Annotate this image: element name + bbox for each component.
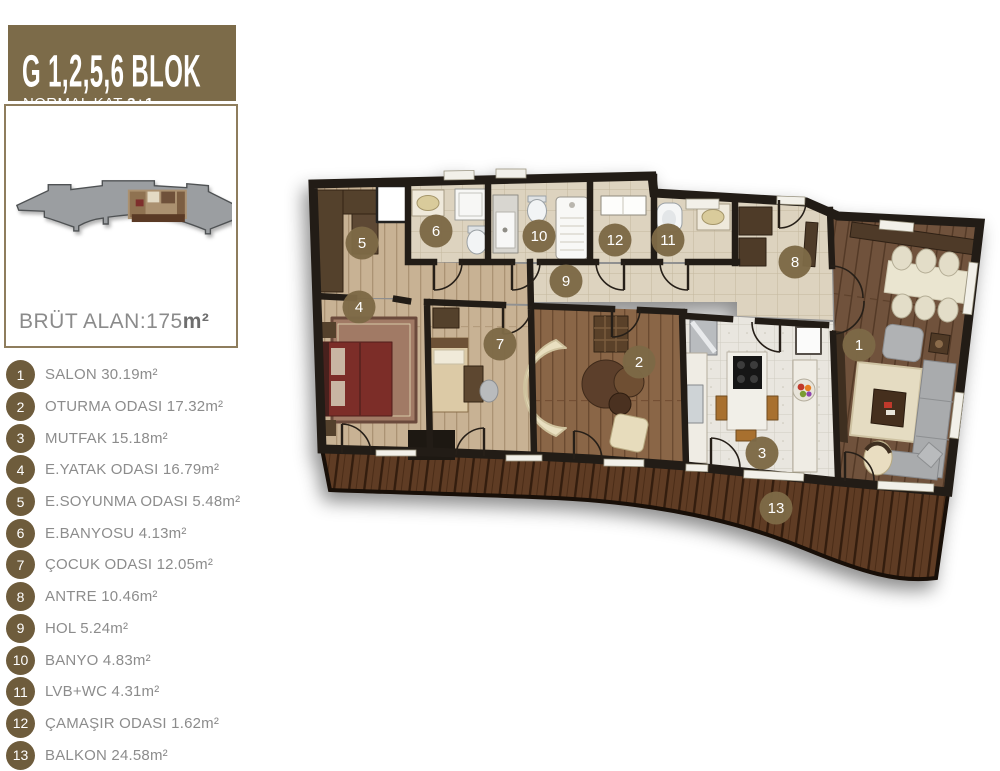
room-marker-number: 10 — [531, 228, 548, 245]
legend-item: 5E.SOYUNMA ODASI 5.48m² — [6, 486, 240, 518]
legend-label: BALKON 24.58m² — [45, 747, 168, 764]
legend-item: 12ÇAMAŞIR ODASI 1.62m² — [6, 708, 240, 740]
room-marker-number: 4 — [355, 299, 363, 316]
legend-label: SALON 30.19m² — [45, 366, 158, 383]
legend-number-badge: 7 — [6, 550, 35, 579]
room-marker-number: 9 — [562, 273, 570, 290]
site-overview-panel: BRÜT ALAN:175m² — [4, 104, 238, 348]
legend-item: 2OTURMA ODASI 17.32m² — [6, 391, 240, 423]
room-legend: 1SALON 30.19m² 2OTURMA ODASI 17.32m² 3MU… — [6, 359, 240, 771]
room-marker-number: 2 — [635, 354, 643, 371]
double-bed — [320, 342, 392, 416]
single-bed — [431, 338, 468, 412]
room-marker-number: 5 — [358, 235, 366, 252]
room-marker-number: 7 — [496, 336, 504, 353]
legend-label: ÇAMAŞIR ODASI 1.62m² — [45, 715, 219, 732]
room-marker-number: 13 — [768, 500, 785, 517]
legend-number-badge: 5 — [6, 487, 35, 516]
room-marker-number: 3 — [758, 445, 766, 462]
fruit-bowl — [793, 379, 815, 401]
legend-number-badge: 4 — [6, 455, 35, 484]
legend-number-badge: 12 — [6, 709, 35, 738]
legend-item: 11LVB+WC 4.31m² — [6, 676, 240, 708]
sink — [687, 385, 703, 423]
building-footprint — [17, 181, 232, 234]
legend-label: OTURMA ODASI 17.32m² — [45, 398, 223, 415]
legend-number-badge: 11 — [6, 677, 35, 706]
legend-number-badge: 13 — [6, 741, 35, 770]
site-overview-map — [6, 106, 232, 342]
legend-number-badge: 9 — [6, 614, 35, 643]
legend-label: ÇOCUK ODASI 12.05m² — [45, 556, 213, 573]
legend-item: 6E.BANYOSU 4.13m² — [6, 517, 240, 549]
room-marker-number: 8 — [791, 254, 799, 271]
legend-label: MUTFAK 15.18m² — [45, 430, 168, 447]
legend-label: LVB+WC 4.31m² — [45, 683, 159, 700]
legend-item: 3MUTFAK 15.18m² — [6, 422, 240, 454]
gross-area-label: BRÜT ALAN:175m² — [19, 310, 209, 334]
room-marker-number: 12 — [607, 232, 624, 249]
highlighted-unit — [128, 190, 187, 222]
room-marker-number: 1 — [855, 337, 863, 354]
floor-plan: 12345678910111213 — [300, 155, 1000, 615]
legend-number-badge: 1 — [6, 360, 35, 389]
legend-number-badge: 3 — [6, 424, 35, 453]
legend-label: HOL 5.24m² — [45, 620, 128, 637]
legend-label: E.SOYUNMA ODASI 5.48m² — [45, 493, 240, 510]
legend-item: 10BANYO 4.83m² — [6, 644, 240, 676]
legend-item: 9HOL 5.24m² — [6, 613, 240, 645]
legend-number-badge: 2 — [6, 392, 35, 421]
desk — [464, 366, 483, 402]
legend-item: 8ANTRE 10.46m² — [6, 581, 240, 613]
legend-label: BANYO 4.83m² — [45, 652, 151, 669]
shaft — [377, 186, 408, 222]
armchair — [882, 324, 924, 363]
legend-label: E.BANYOSU 4.13m² — [45, 525, 187, 542]
room-marker-number: 6 — [432, 223, 440, 240]
legend-number-badge: 6 — [6, 519, 35, 548]
block-title: G 1,2,5,6 BLOK — [22, 51, 201, 96]
legend-item: 4E.YATAK ODASI 16.79m² — [6, 454, 240, 486]
legend-item: 13BALKON 24.58m² — [6, 739, 240, 771]
cooktop — [733, 356, 762, 389]
legend-label: E.YATAK ODASI 16.79m² — [45, 461, 219, 478]
room-marker-number: 11 — [660, 232, 676, 249]
legend-item: 1SALON 30.19m² — [6, 359, 240, 391]
legend-number-badge: 8 — [6, 582, 35, 611]
legend-number-badge: 10 — [6, 646, 35, 675]
legend-label: ANTRE 10.46m² — [45, 588, 158, 605]
legend-item: 7ÇOCUK ODASI 12.05m² — [6, 549, 240, 581]
block-header: G 1,2,5,6 BLOK NORMAL KAT 3+1 — [8, 25, 236, 101]
